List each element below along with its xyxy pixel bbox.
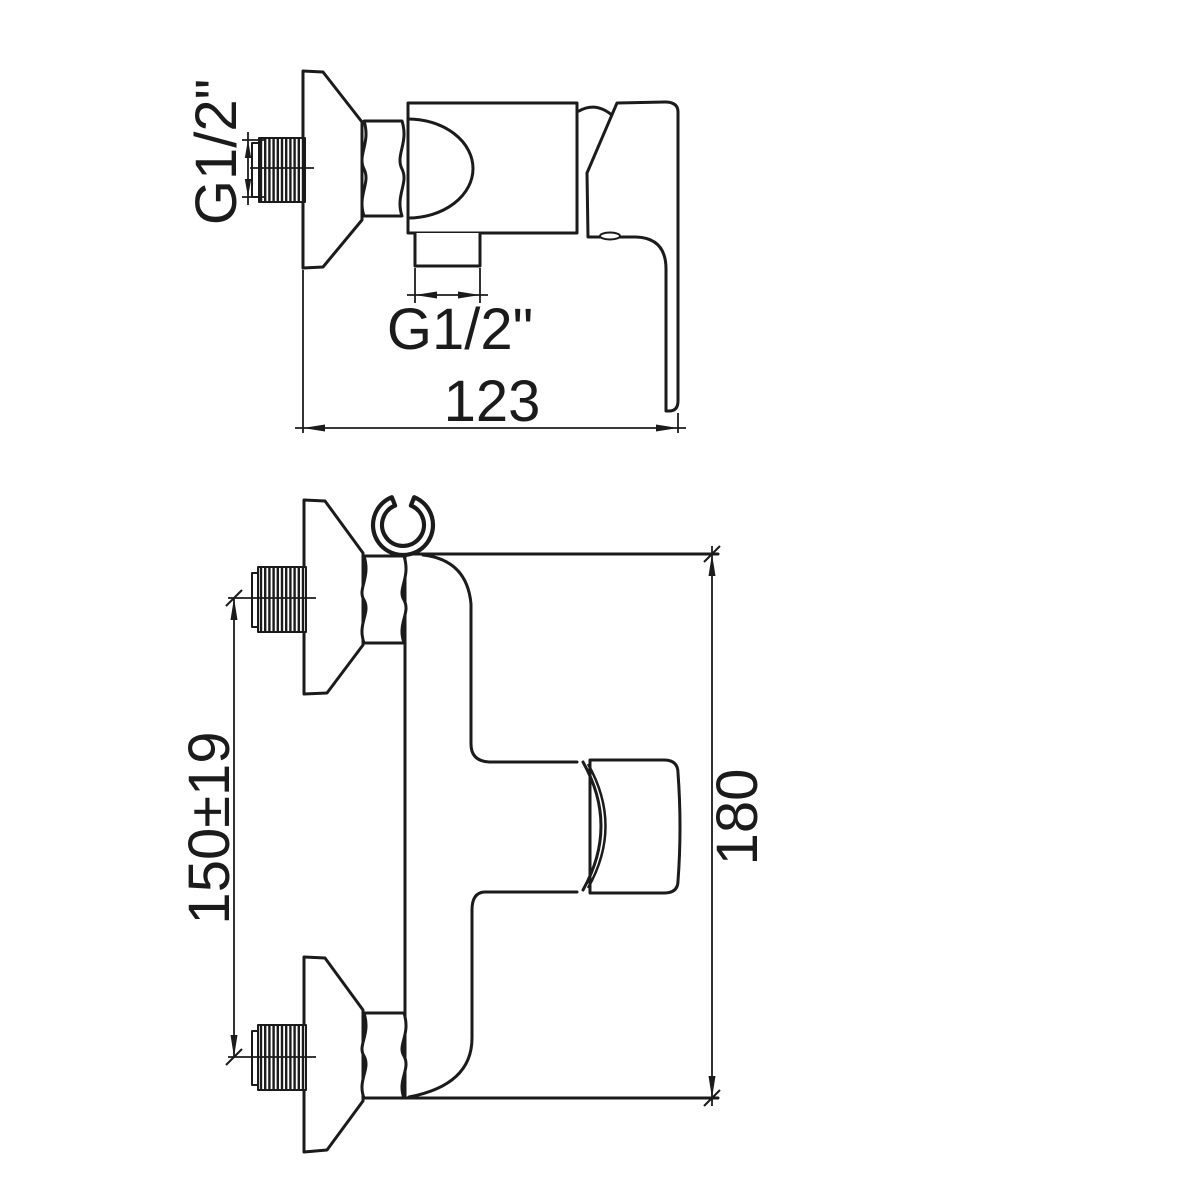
hex-nut-bottom <box>362 1013 406 1098</box>
lever-handle <box>587 102 678 411</box>
handle-knob <box>590 760 680 893</box>
handle-cap-arc <box>579 107 614 117</box>
spacing-dimension-label: 150±19 <box>177 731 242 924</box>
shower-hook <box>373 497 433 555</box>
handle-screw-detail <box>600 233 620 240</box>
hex-nut <box>362 121 404 216</box>
inlet-thread-collar <box>252 143 259 197</box>
hex-nut-top <box>362 556 406 643</box>
technical-drawing: G1/2" G1/2" 123 <box>0 0 1200 1200</box>
body-lower-contour <box>409 892 577 1097</box>
outlet-port <box>415 233 480 266</box>
inlet-thread-label: G1/2" <box>184 79 249 225</box>
body-upper-contour <box>423 555 577 762</box>
wall-flange-bottom <box>304 957 363 1152</box>
height-dimension-label: 180 <box>705 769 770 866</box>
wall-flange-top <box>304 500 363 694</box>
wall-flange <box>303 71 362 268</box>
outlet-thread-label: G1/2" <box>387 297 533 362</box>
width-dimension-label: 123 <box>444 369 541 434</box>
front-view: 150±19 180 <box>177 497 770 1152</box>
side-view: G1/2" G1/2" 123 <box>184 71 686 434</box>
